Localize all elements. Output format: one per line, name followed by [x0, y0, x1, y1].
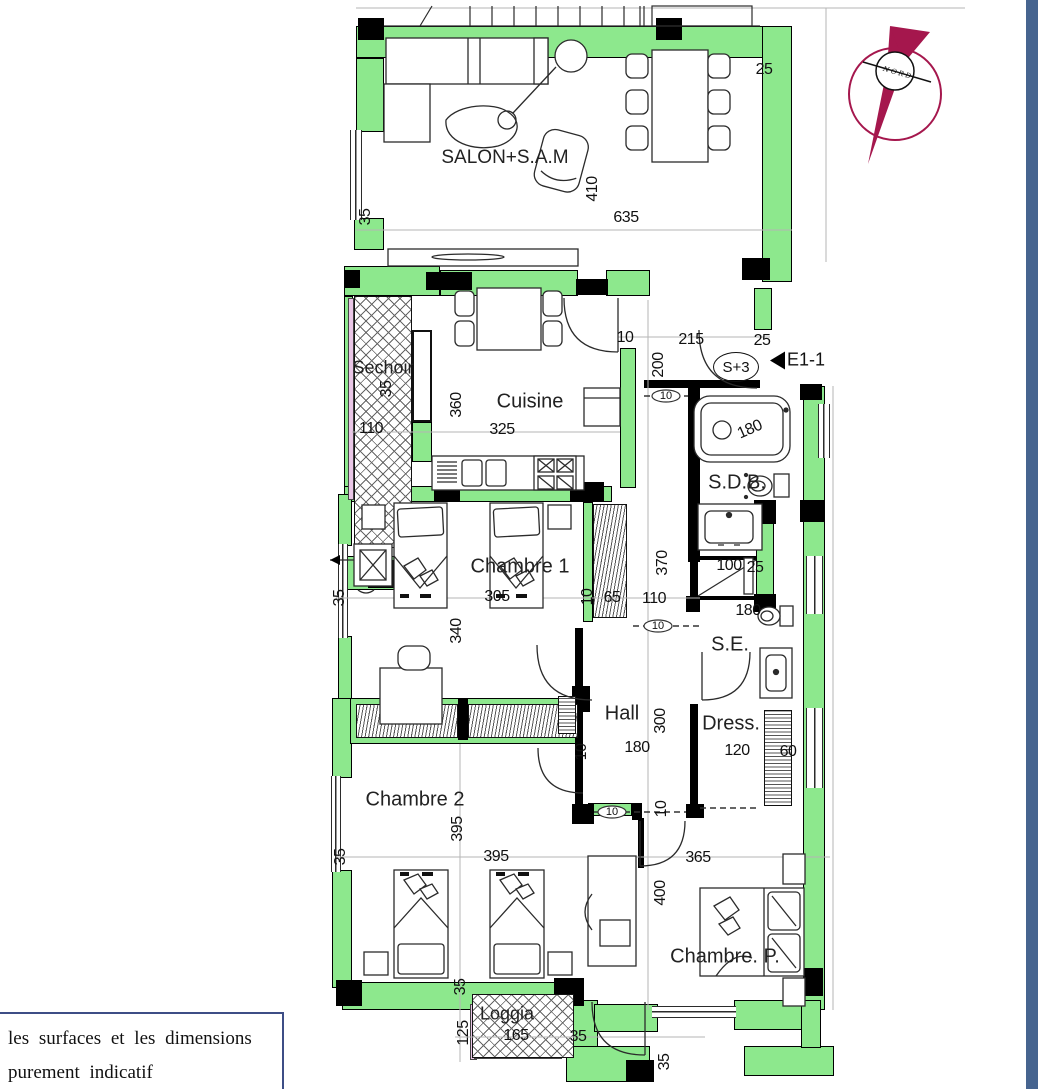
page-frame-bar [1026, 0, 1038, 1089]
dim-label: 370 [654, 550, 672, 575]
note-line1: les surfaces et les dimensions [8, 1022, 278, 1056]
room-label-loggia: Loggia [480, 1004, 534, 1025]
dim-label: 10 [579, 589, 597, 606]
room-label-chambre1: Chambre 1 [471, 556, 570, 579]
dim-label: 300 [652, 708, 670, 733]
dim-label: 35 [378, 381, 396, 398]
dim-label: 35 [331, 590, 349, 607]
dim-label: 410 [584, 176, 602, 201]
room-label-se: S.E. [711, 634, 749, 657]
dim-label: 305 [484, 588, 509, 606]
dim-label: 10 [652, 620, 664, 632]
dim-label: 110 [359, 420, 383, 438]
chambre-p-furniture [640, 821, 805, 1006]
dim-label: 10 [617, 329, 634, 347]
dim-label: 180 [624, 739, 649, 757]
room-label-cuisine: Cuisine [497, 391, 564, 414]
dim-label: 395 [449, 816, 467, 841]
compass-rose: NORD [843, 14, 948, 179]
room-label-sdb: S.D.B. [708, 472, 766, 495]
dim-label: 10 [653, 801, 671, 818]
room-label-dress: Dress. [702, 713, 760, 736]
dim-label: 340 [448, 618, 466, 643]
disclaimer-note: les surfaces et les dimensions purement … [0, 1012, 284, 1089]
room-label-chambre2: Chambre 2 [366, 789, 465, 812]
dim-label: 60 [780, 743, 797, 761]
dim-label: 25 [754, 332, 771, 350]
note-line2: purement indicatif [8, 1056, 278, 1089]
dim-label: 325 [489, 421, 514, 439]
chambre1-furniture [362, 503, 592, 724]
entrance-door-label: E1-1 [787, 350, 825, 371]
dim-label: 125 [455, 1020, 473, 1045]
unit-badge: S+3 [713, 352, 759, 382]
dim-label: 215 [678, 331, 703, 349]
dim-label: 120 [724, 742, 749, 760]
dim-label: 35 [570, 1028, 587, 1046]
cuisine-furniture [432, 288, 620, 490]
dim-label: 10 [660, 390, 672, 402]
dim-label: 10 [606, 806, 618, 818]
dim-label: 25 [747, 559, 764, 577]
dim-label: 35 [452, 979, 470, 996]
dim-label: 400 [652, 880, 670, 905]
room-label-hall: Hall [605, 703, 639, 726]
sechoir-basin [330, 544, 392, 593]
dim-label: 110 [642, 590, 666, 608]
entrance-tag: E1-1 [770, 350, 825, 371]
dim-label: 100 [716, 557, 741, 575]
floor-plan-page: NORD SALON+S.A.M Sechoir Cuisine S.D.B. … [0, 0, 1041, 1089]
dim-label: 365 [685, 849, 710, 867]
room-label-chambre-p: Chambre. P. [670, 946, 780, 969]
room-label-salon: SALON+S.A.M [441, 147, 568, 169]
dim-label: 25 [756, 61, 773, 79]
room-label-sechoir: Sechoir [352, 358, 413, 379]
dim-label: 200 [650, 352, 668, 377]
entrance-arrow-icon [770, 351, 785, 369]
dim-label: 395 [483, 848, 508, 866]
dim-label: 65 [604, 589, 621, 607]
dim-label: 35 [357, 209, 375, 226]
dim-label: 360 [448, 392, 466, 417]
dim-label: 35 [332, 849, 350, 866]
balcony-ticks [384, 6, 760, 26]
dim-label: 165 [503, 1027, 528, 1045]
loggia-door-arc [592, 1002, 645, 1055]
dim-label: 635 [613, 209, 638, 227]
dim-label: 10 [573, 744, 591, 761]
dim-label: 35 [656, 1054, 674, 1071]
dim-label: 180 [735, 602, 760, 620]
